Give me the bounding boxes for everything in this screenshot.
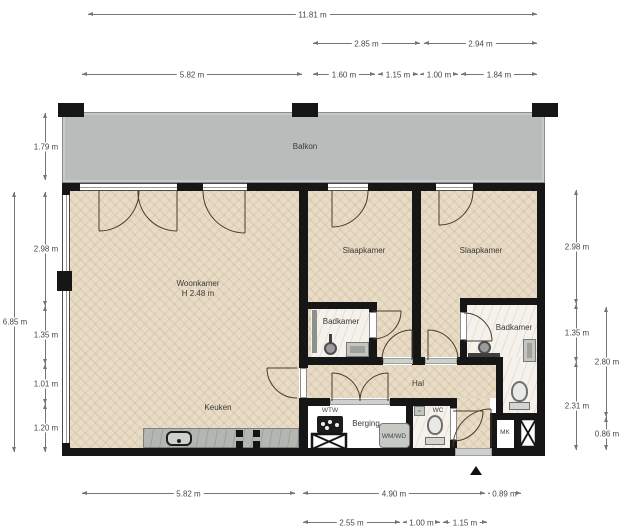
dimension-label: 1.79 m	[31, 142, 61, 151]
dimension-line: 1.35 m	[576, 304, 577, 362]
dimension-line: 4.90 m	[303, 493, 485, 494]
dimension-line: 1.15 m	[443, 522, 487, 523]
dimension-label: 0.89 m	[489, 490, 519, 499]
dimension-line: 5.82 m	[82, 493, 295, 494]
dimension-line: 2.85 m	[313, 43, 420, 44]
dimension-layer: 11.81 m2.85 m2.94 m5.82 m1.60 m1.15 m1.0…	[0, 0, 640, 531]
dimension-label: 2.80 m	[592, 358, 622, 367]
dimension-label: 5.82 m	[173, 490, 203, 499]
dimension-label: 11.81 m	[295, 11, 329, 20]
dimension-line: 2.98 m	[45, 192, 46, 306]
dimension-label: 1.15 m	[450, 519, 480, 528]
dimension-label: 1.84 m	[484, 71, 514, 80]
dimension-label: 2.85 m	[351, 40, 381, 49]
dimension-line: 1.79 m	[45, 113, 46, 180]
dimension-line: 1.20 m	[45, 404, 46, 452]
dimension-label: 1.00 m	[406, 519, 436, 528]
dimension-line: 2.98 m	[576, 190, 577, 304]
dimension-line: 1.01 m	[45, 364, 46, 404]
dimension-line: 1.35 m	[45, 306, 46, 364]
dimension-label: 1.60 m	[329, 71, 359, 80]
dimension-label: 5.82 m	[177, 71, 207, 80]
dimension-label: 2.98 m	[31, 245, 61, 254]
dimension-line: 2.31 m	[576, 362, 577, 450]
dimension-label: 1.15 m	[383, 71, 413, 80]
dimension-line: 1.84 m	[461, 74, 537, 75]
dimension-label: 1.00 m	[424, 71, 454, 80]
floorplan-canvas: BalkonWoonkamerH 2.48 mSlaapkamerSlaapka…	[0, 0, 640, 531]
dimension-line: 1.00 m	[420, 74, 458, 75]
dimension-label: 4.90 m	[379, 490, 409, 499]
dimension-line: 2.94 m	[424, 43, 537, 44]
dimension-line: 1.00 m	[403, 522, 440, 523]
dimension-line: 5.82 m	[82, 74, 302, 75]
dimension-label: 1.20 m	[31, 424, 61, 433]
dimension-label: 2.55 m	[336, 519, 366, 528]
dimension-label: 2.31 m	[562, 402, 592, 411]
dimension-line: 1.60 m	[313, 74, 375, 75]
dimension-line: 1.15 m	[378, 74, 418, 75]
dimension-label: 2.94 m	[465, 40, 495, 49]
dimension-label: 1.35 m	[562, 329, 592, 338]
dimension-label: 0.86 m	[592, 429, 622, 438]
dimension-label: 6.85 m	[0, 318, 30, 327]
dimension-label: 2.98 m	[562, 243, 592, 252]
dimension-label: 1.01 m	[31, 380, 61, 389]
dimension-line: 0.86 m	[606, 417, 607, 450]
dimension-line: 11.81 m	[88, 14, 537, 15]
dimension-line: 0.89 m	[488, 493, 521, 494]
dimension-line: 6.85 m	[14, 192, 15, 452]
dimension-label: 1.35 m	[31, 331, 61, 340]
dimension-line: 2.80 m	[606, 307, 607, 417]
dimension-line: 2.55 m	[303, 522, 400, 523]
